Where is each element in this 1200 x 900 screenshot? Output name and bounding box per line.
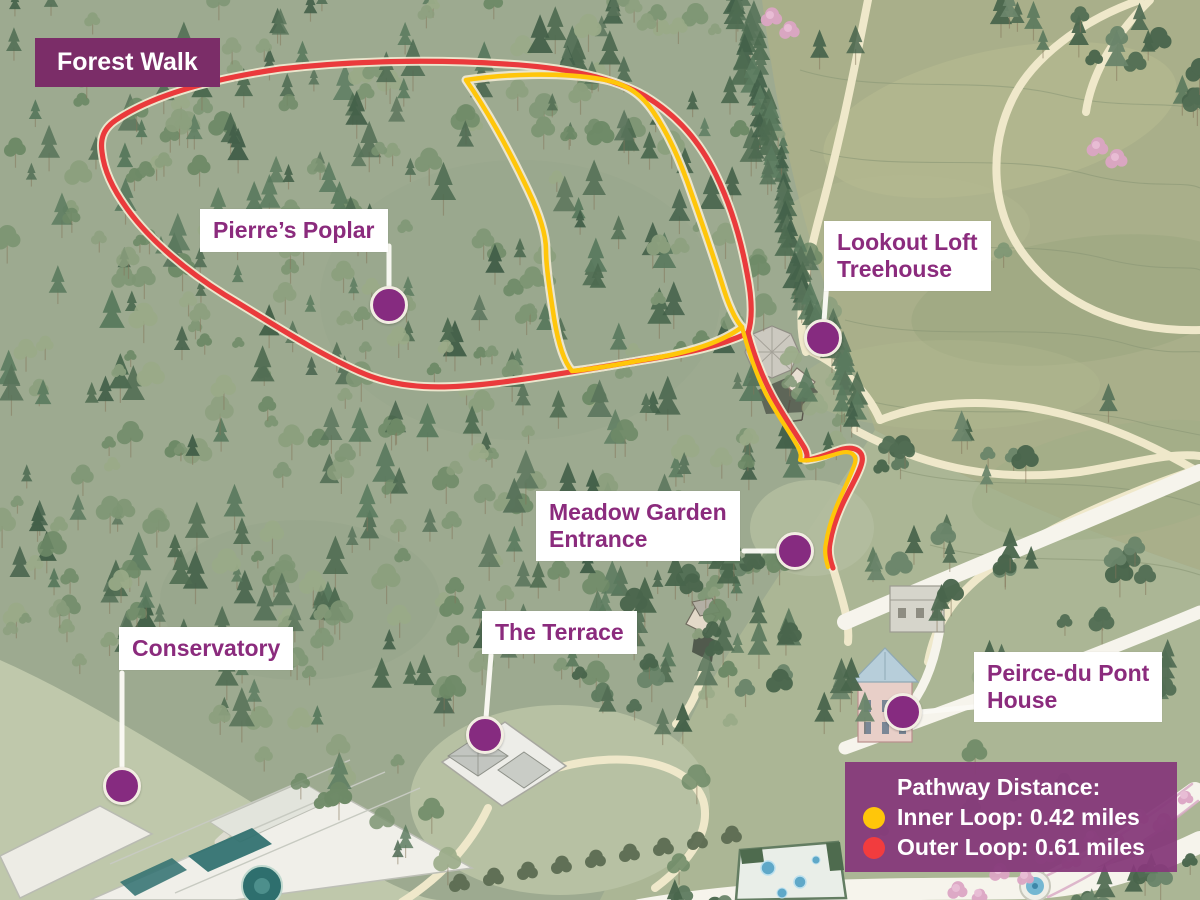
label-peirce-du-pont-house: Peirce-du Pont House xyxy=(974,652,1162,722)
label-the-terrace: The Terrace xyxy=(482,611,637,654)
forest-walk-map: Forest Walk Pierre’s Poplar Lookout Loft… xyxy=(0,0,1200,900)
map-title-badge: Forest Walk xyxy=(35,38,220,87)
label-lookout-loft-treehouse: Lookout Loft Treehouse xyxy=(824,221,991,291)
legend-row-outer-loop: Outer Loop: 0.61 miles xyxy=(863,834,1163,861)
label-pierres-poplar: Pierre’s Poplar xyxy=(200,209,388,252)
label-conservatory: Conservatory xyxy=(119,627,293,670)
marker-the-terrace xyxy=(466,716,504,754)
water-garden xyxy=(736,842,846,900)
legend-row-inner-loop: Inner Loop: 0.42 miles xyxy=(863,804,1163,831)
marker-peirce-du-pont-house xyxy=(884,693,922,731)
marker-meadow-garden-entrance xyxy=(776,532,814,570)
marker-lookout-loft-treehouse xyxy=(804,319,842,357)
label-meadow-garden-entrance: Meadow Garden Entrance xyxy=(536,491,740,561)
marker-conservatory xyxy=(103,767,141,805)
legend-title: Pathway Distance: xyxy=(897,774,1163,801)
inner-loop-dot-icon xyxy=(863,807,885,829)
pathway-distance-legend: Pathway Distance: Inner Loop: 0.42 miles… xyxy=(845,762,1177,872)
outer-loop-dot-icon xyxy=(863,837,885,859)
marker-pierres-poplar xyxy=(370,286,408,324)
